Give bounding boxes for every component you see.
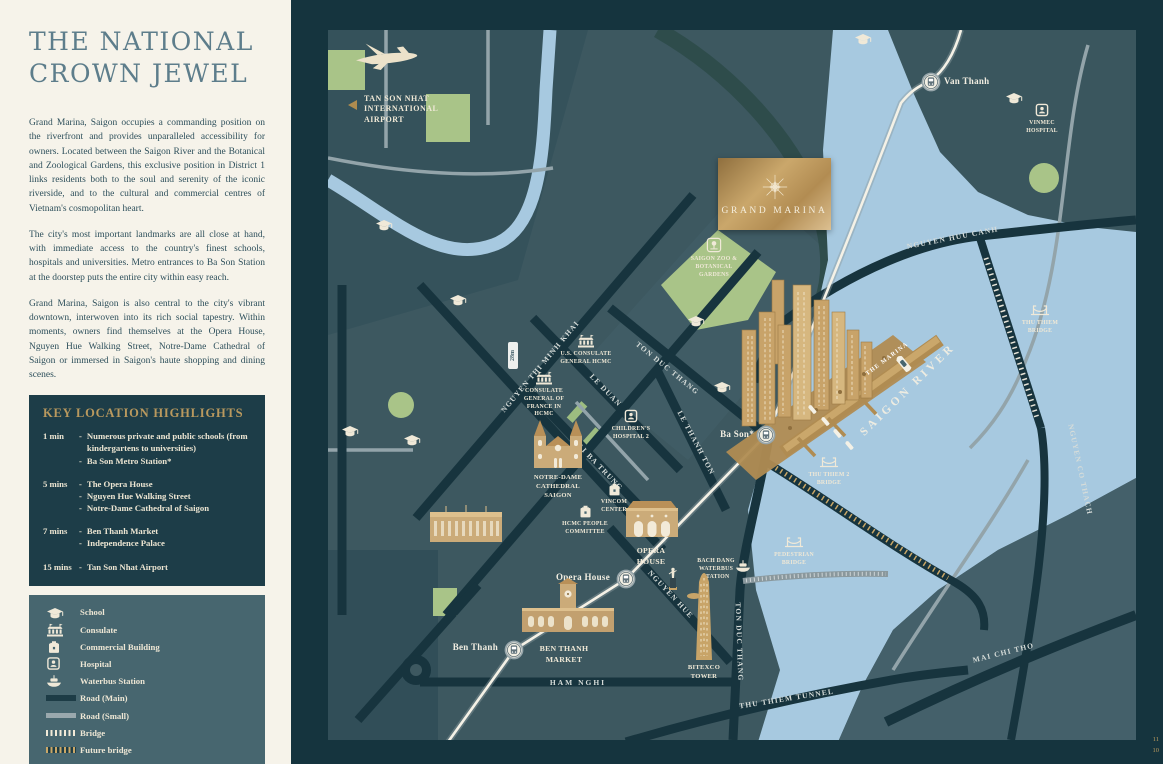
city-map: NGUYEN THI MINH KHAI LE DUAN HAI BA TRUN… — [328, 30, 1136, 740]
station-ben-thanh — [506, 642, 523, 659]
map-legend: School Consulate Commercial Building Hos… — [29, 595, 265, 764]
map-artwork: NGUYEN THI MINH KHAI LE DUAN HAI BA TRUN… — [328, 30, 1136, 740]
legend-row: Pedestrian bridge — [43, 758, 253, 764]
highlight-row: 15 mins Tan Son Nhat Airport — [43, 561, 253, 573]
legend-row: Road (Main) — [43, 690, 253, 707]
intro-paragraph-1: Grand Marina, Saigon occupies a commandi… — [29, 116, 265, 216]
legend-row: Consulate — [43, 621, 253, 638]
highlight-row: 7 mins Ben Thanh Market Independence Pal… — [43, 525, 253, 549]
commercial-building-icon — [43, 639, 80, 654]
station-van-thanh — [923, 74, 940, 91]
intro-paragraph-2: The city's most important landmarks are … — [29, 228, 265, 285]
school-icon — [43, 605, 80, 619]
legend-row: Road (Small) — [43, 707, 253, 724]
page-title: THE NATIONAL CROWN JEWEL — [29, 26, 265, 90]
legend-row: Hospital — [43, 655, 253, 672]
left-panel: THE NATIONAL CROWN JEWEL Grand Marina, S… — [0, 0, 291, 764]
station-opera-house — [618, 571, 635, 588]
road-small-swatch — [43, 713, 80, 718]
legend-row: Future bridge — [43, 741, 253, 758]
station-ba-son — [758, 427, 775, 444]
page-number: 10 — [1153, 745, 1160, 756]
legend-row: Bridge — [43, 724, 253, 741]
hospital-icon — [43, 656, 80, 671]
highlight-row: 1 min Numerous private and public school… — [43, 430, 253, 467]
future-bridge-swatch — [43, 747, 80, 753]
legend-row: School — [43, 604, 253, 621]
title-line-2: CROWN JEWEL — [29, 59, 248, 88]
key-location-highlights: KEY LOCATION HIGHLIGHTS 1 min Numerous p… — [29, 395, 265, 586]
page-number: 11 — [1153, 734, 1159, 745]
legend-row: Commercial Building — [43, 638, 253, 655]
street-label-ham-nghi: HAM NGHI — [550, 678, 606, 687]
map-panel: NGUYEN THI MINH KHAI LE DUAN HAI BA TRUN… — [291, 0, 1163, 764]
highlights-heading: KEY LOCATION HIGHLIGHTS — [43, 406, 253, 421]
legend-row: Waterbus Station — [43, 673, 253, 690]
brochure-page: THE NATIONAL CROWN JEWEL Grand Marina, S… — [0, 0, 1163, 764]
consulate-icon — [43, 622, 80, 637]
bridge-swatch — [43, 730, 80, 736]
waterbus-icon — [43, 674, 80, 688]
page-numbers: 11 10 — [1153, 734, 1160, 756]
title-line-1: THE NATIONAL — [29, 27, 254, 56]
intro-paragraph-3: Grand Marina, Saigon is also central to … — [29, 297, 265, 383]
road-main-swatch — [43, 695, 80, 701]
highlight-row: 5 mins The Opera House Nguyen Hue Walkin… — [43, 478, 253, 515]
